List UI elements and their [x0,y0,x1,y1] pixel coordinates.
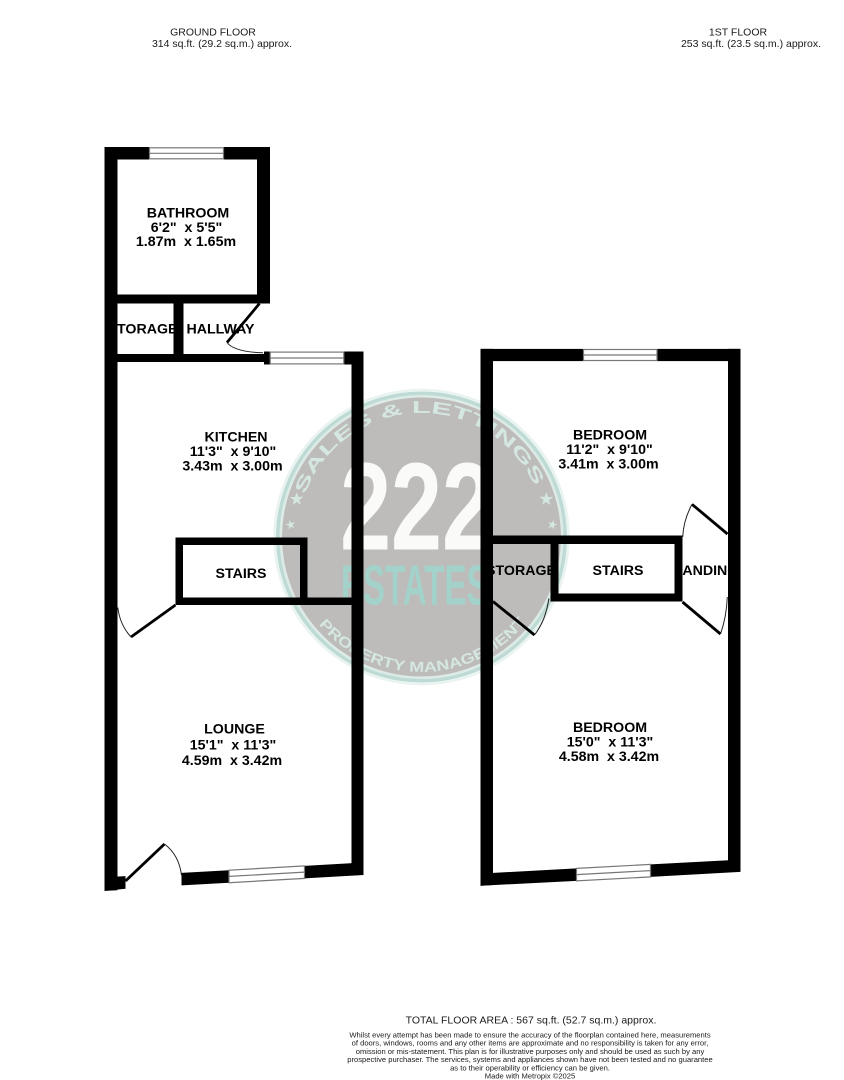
svg-text:314 sq.ft. (29.2 sq.m.) approx: 314 sq.ft. (29.2 sq.m.) approx. [152,38,292,50]
svg-text:HALLWAY: HALLWAY [186,322,255,338]
svg-text:TOTAL FLOOR AREA : 567 sq.ft.: TOTAL FLOOR AREA : 567 sq.ft. (52.7 sq.m… [406,1015,657,1027]
svg-text:3.43m x 3.00m: 3.43m x 3.00m [182,459,282,475]
svg-text:4.58m x 3.42m: 4.58m x 3.42m [559,749,659,765]
svg-text:STAIRS: STAIRS [216,566,267,582]
svg-text:STORAGE: STORAGE [486,563,556,579]
svg-text:4.59m x 3.42m: 4.59m x 3.42m [182,753,282,769]
svg-text:1ST FLOOR: 1ST FLOOR [709,27,768,39]
svg-text:GROUND FLOOR: GROUND FLOOR [170,27,256,39]
svg-text:STORAGE: STORAGE [108,322,178,338]
svg-text:LOUNGE: LOUNGE [204,722,265,738]
svg-text:STAIRS: STAIRS [593,563,644,579]
svg-text:253 sq.ft. (23.5 sq.m.) approx: 253 sq.ft. (23.5 sq.m.) approx. [681,38,821,50]
svg-text:1.87m x 1.65m: 1.87m x 1.65m [136,234,236,250]
svg-text:Made with Metropix ©2025: Made with Metropix ©2025 [485,1071,575,1080]
svg-text:3.41m x 3.00m: 3.41m x 3.00m [558,457,658,473]
svg-text:15'1" x 11'3": 15'1" x 11'3" [190,738,276,754]
